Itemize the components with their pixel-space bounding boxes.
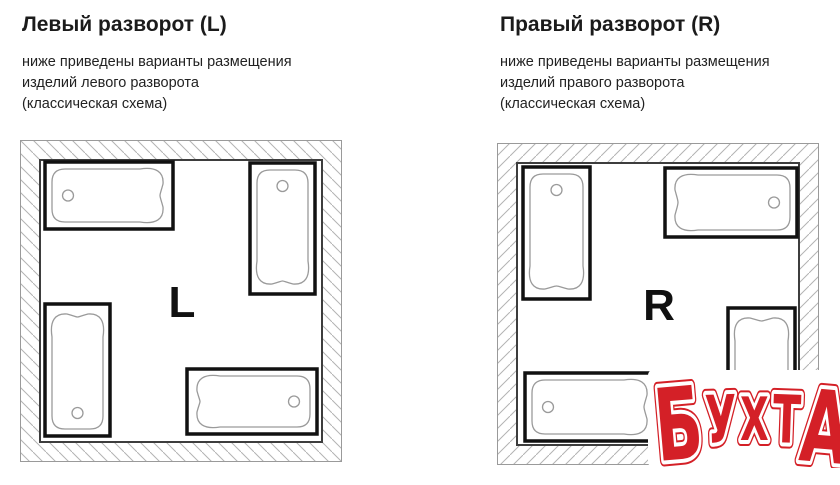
panel-description: ниже приведены варианты размещения издел… — [22, 52, 292, 115]
panel-description-line: (классическая схема) — [22, 94, 292, 115]
room-diagram-left: L — [20, 140, 342, 462]
panel-description-line: изделий левого разворота — [22, 73, 292, 94]
bathtub-drain-bottom — [45, 304, 110, 436]
panel-description-line: (классическая схема) — [500, 94, 770, 115]
panel-title: Правый разворот (R) — [500, 13, 720, 37]
watermark-letter: Б — [650, 368, 707, 468]
panel-description-line: ниже приведены варианты размещения — [22, 52, 292, 73]
bathtub-drain-top — [250, 163, 315, 294]
drain-icon — [543, 402, 554, 413]
watermark-letter: Т — [771, 381, 802, 459]
panel-description-line: изделий правого разворота — [500, 73, 770, 94]
drain-icon — [289, 396, 300, 407]
panel-description-line: ниже приведены варианты размещения — [500, 52, 770, 73]
drain-icon — [63, 190, 74, 201]
bathtub-drain-left — [525, 373, 657, 441]
panel-title: Левый разворот (L) — [22, 13, 227, 37]
drain-icon — [551, 185, 562, 196]
drain-icon — [72, 408, 83, 419]
page: Левый разворот (L) ниже приведены вариан… — [0, 0, 840, 485]
bathtub-drain-left — [45, 162, 173, 229]
watermark-letter: У — [704, 381, 738, 459]
drain-icon — [769, 197, 780, 208]
bathtub-drain-right — [665, 168, 797, 237]
bathtub-drain-right — [187, 369, 317, 434]
watermark-letter: Х — [740, 385, 769, 455]
buhta-watermark-logo: ББУУХХТТАА — [648, 368, 840, 468]
drain-icon — [277, 181, 288, 192]
panel-description: ниже приведены варианты размещения издел… — [500, 52, 770, 115]
orientation-letter: R — [643, 281, 675, 330]
bathtub-drain-top — [523, 167, 590, 299]
orientation-letter: L — [169, 278, 196, 327]
